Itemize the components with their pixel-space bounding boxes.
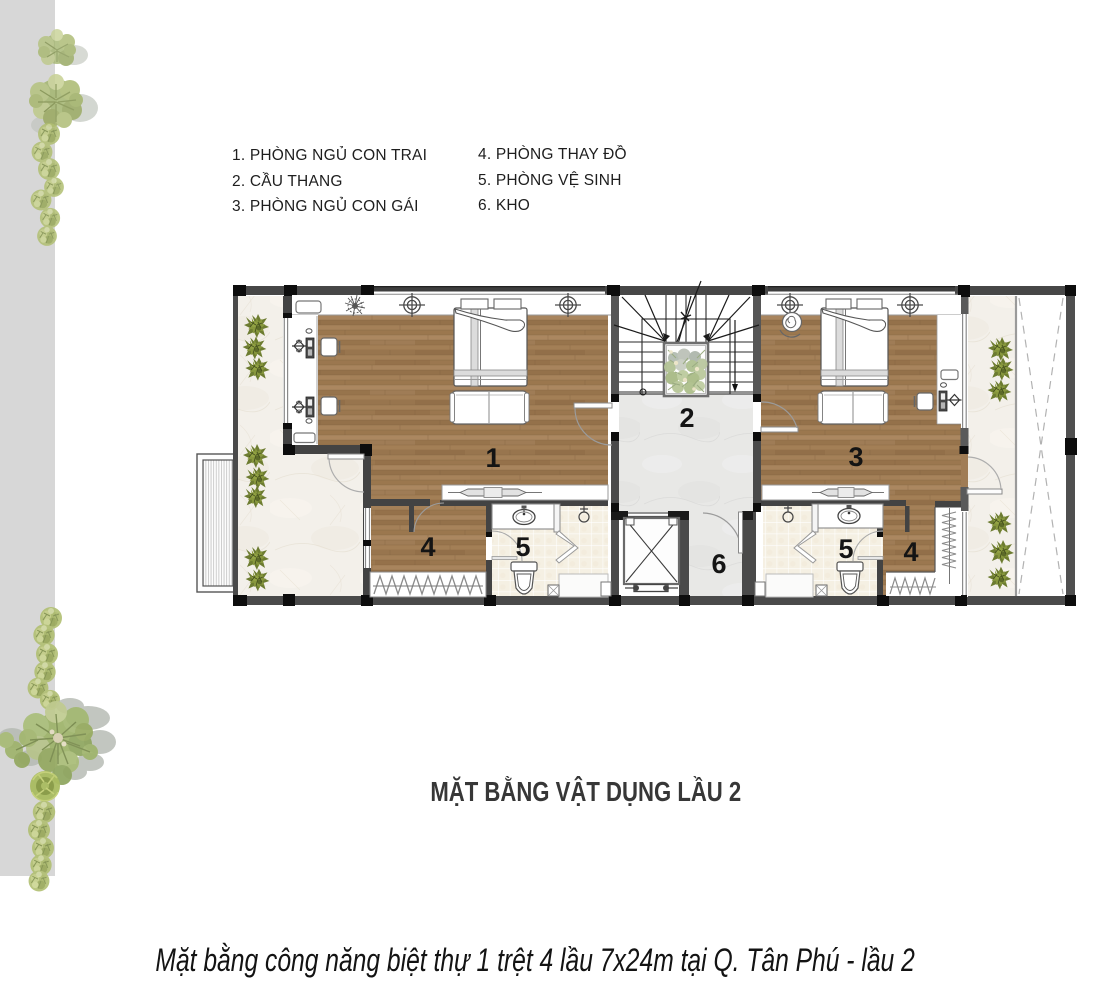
svg-text:2: 2: [679, 403, 694, 433]
svg-text:3: 3: [848, 442, 863, 472]
svg-text:6: 6: [711, 549, 726, 579]
svg-text:5: 5: [838, 534, 853, 564]
svg-text:5: 5: [515, 532, 530, 562]
svg-text:4: 4: [903, 537, 918, 567]
svg-text:4: 4: [420, 532, 435, 562]
svg-text:1: 1: [485, 443, 500, 473]
